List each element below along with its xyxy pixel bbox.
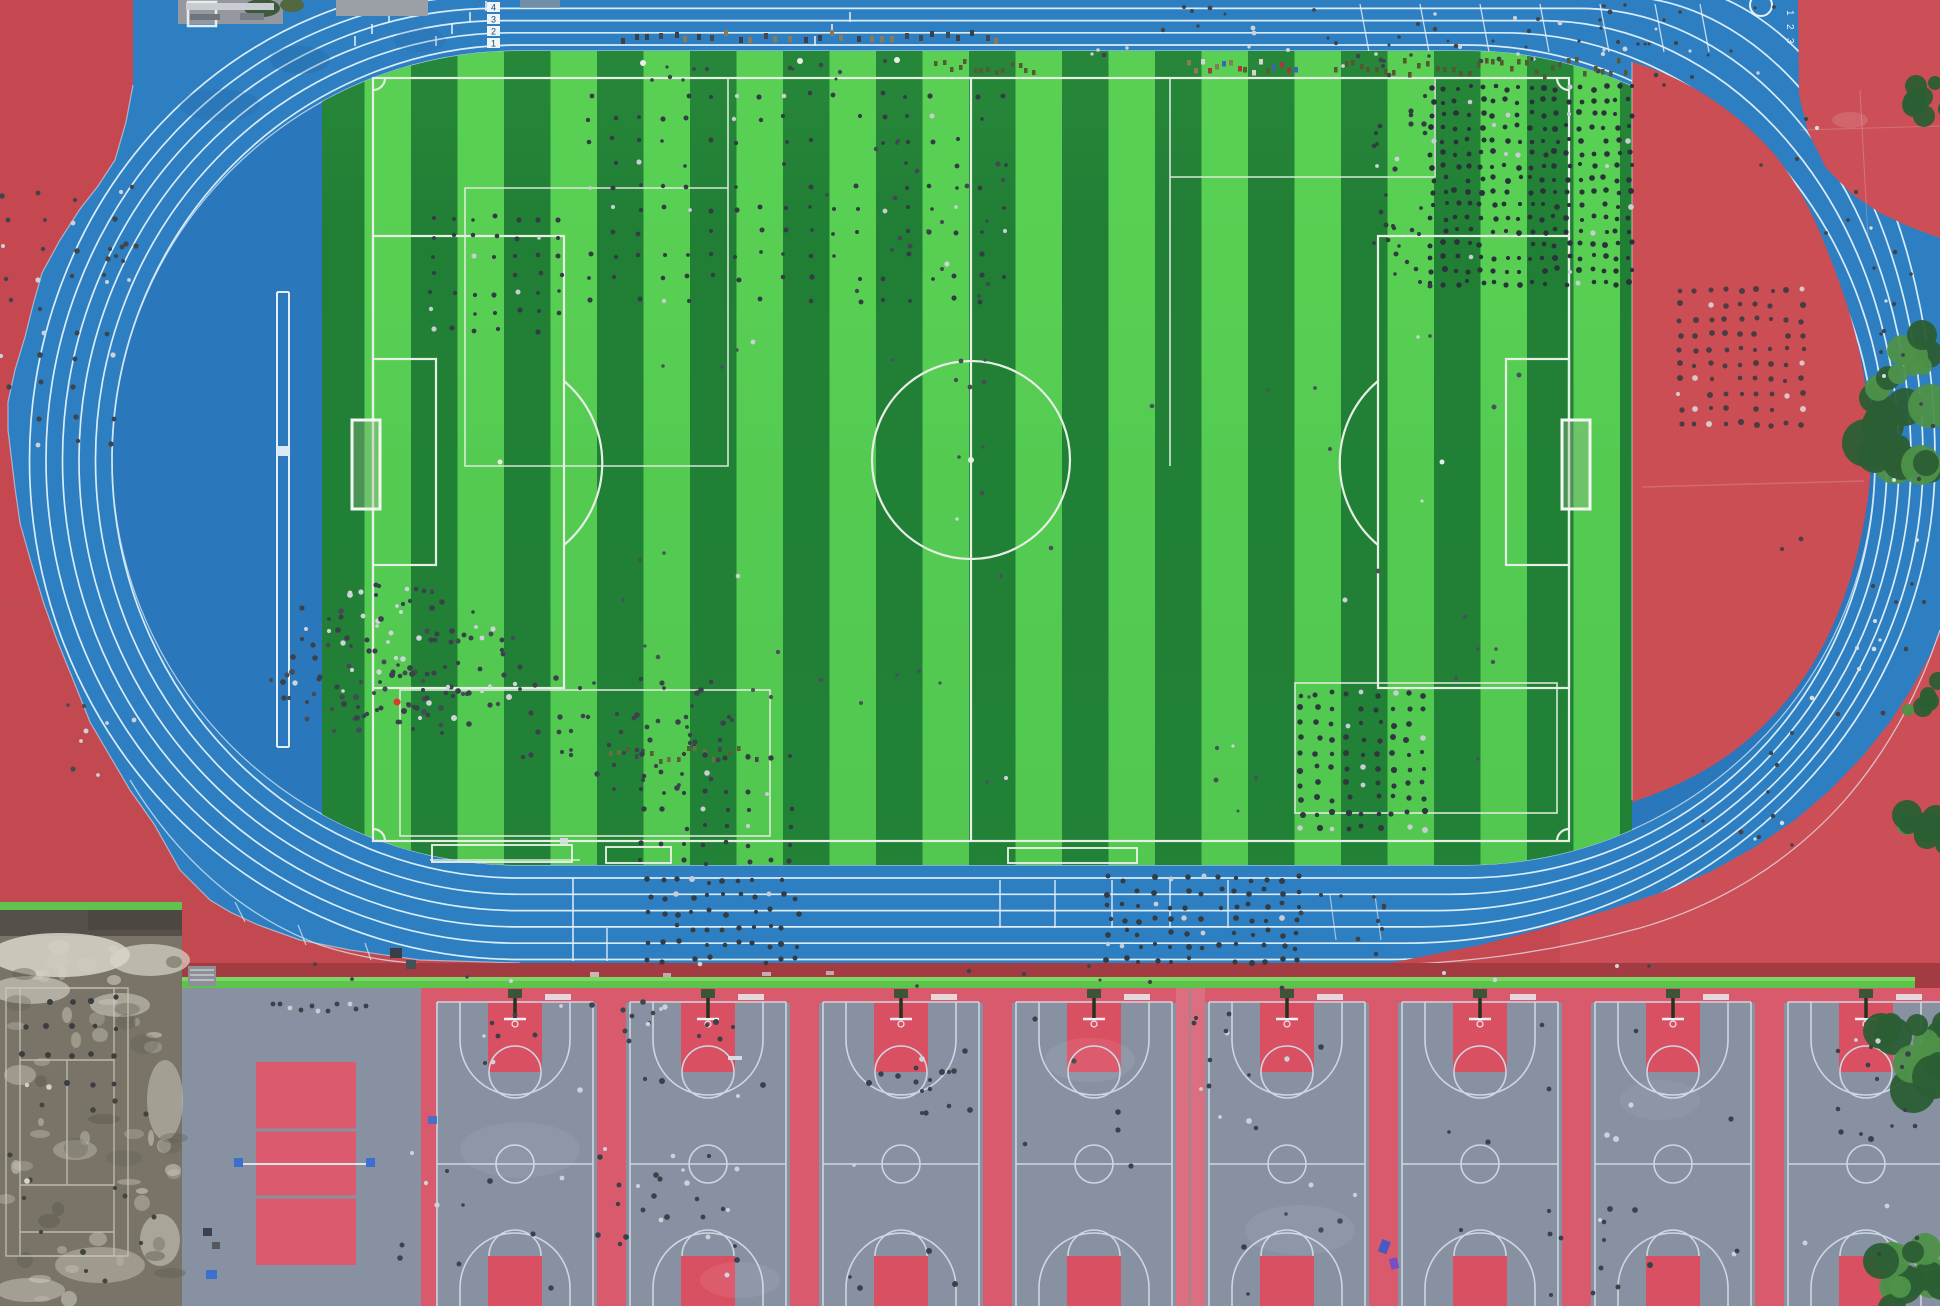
svg-text:2: 2 [1784, 24, 1795, 30]
svg-text:1: 1 [1784, 10, 1795, 16]
svg-text:3: 3 [491, 15, 496, 25]
svg-text:3: 3 [1784, 38, 1795, 44]
svg-text:2: 2 [491, 27, 496, 37]
svg-text:4: 4 [491, 3, 496, 13]
svg-text:1: 1 [491, 39, 496, 49]
